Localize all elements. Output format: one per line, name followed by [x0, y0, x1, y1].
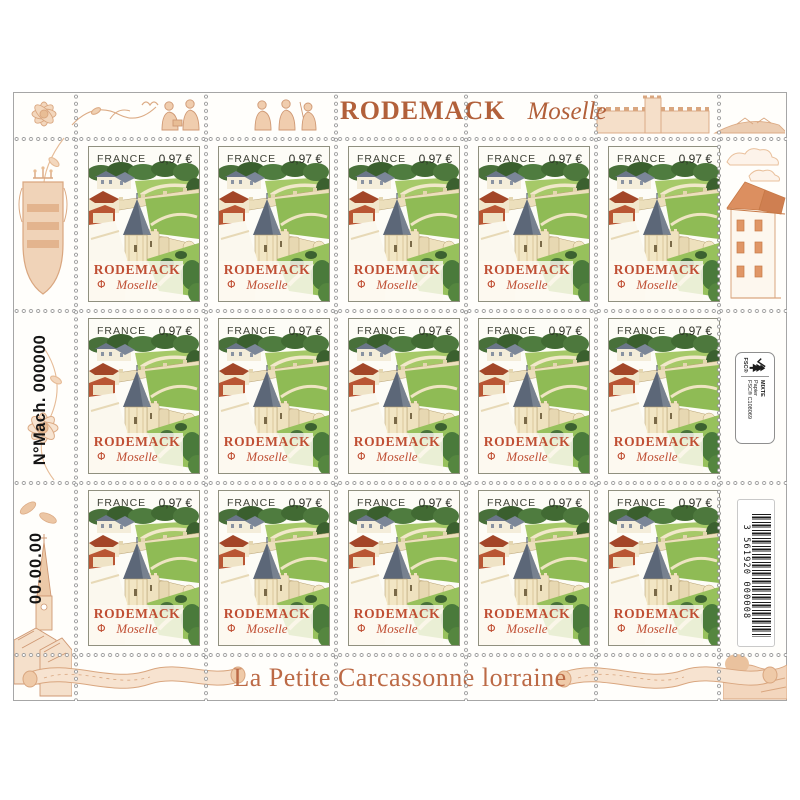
- fsc-line-mixte: MIXTE: [758, 380, 765, 419]
- stamp-name-label: RODEMACK: [349, 606, 445, 622]
- stamp-face-value: 0,97 €: [549, 152, 582, 166]
- stamp-name-label: RODEMACK: [89, 262, 185, 278]
- stamp: FRANCE 0,97 € RODEMACK Moselle Φ: [348, 318, 460, 474]
- stamp: FRANCE 0,97 € RODEMACK Moselle Φ: [88, 490, 200, 646]
- stamp-face-value: 0,97 €: [159, 152, 192, 166]
- stamp-name-label: RODEMACK: [609, 606, 705, 622]
- stamp-country-label: FRANCE: [617, 325, 666, 337]
- barcode-content: 3 561920 000008: [740, 502, 772, 642]
- stamp-face-value: 0,97 €: [289, 152, 322, 166]
- stamp-face-value: 0,97 €: [419, 496, 452, 510]
- fsc-label-content: FSC® MIXTE Papier FSC® C108069: [736, 354, 774, 442]
- stamp-printer-mark: Φ: [617, 450, 626, 463]
- stamp: FRANCE 0,97 € RODEMACK Moselle Φ: [608, 490, 720, 646]
- stamp-printer-mark: Φ: [227, 622, 236, 635]
- stamp-printer-mark: Φ: [487, 450, 496, 463]
- sheet-title-region: Moselle: [527, 98, 606, 126]
- stamp-name-label: RODEMACK: [479, 606, 575, 622]
- stamp-face-value: 0,97 €: [679, 324, 712, 338]
- stamp-face-value: 0,97 €: [419, 324, 452, 338]
- fsc-divider: [741, 376, 769, 377]
- barcode-number: 3 561920 000008: [741, 502, 751, 642]
- stamp-face-value: 0,97 €: [159, 324, 192, 338]
- stamp-name-label: RODEMACK: [89, 606, 185, 622]
- stamp-name-label: RODEMACK: [349, 262, 445, 278]
- sheet-title: RODEMACK Moselle: [340, 96, 607, 126]
- stamp-name-label: RODEMACK: [479, 434, 575, 450]
- stamp-printer-mark: Φ: [97, 450, 106, 463]
- stamp: FRANCE 0,97 € RODEMACK Moselle Φ: [348, 146, 460, 302]
- stamp-country-label: FRANCE: [617, 153, 666, 165]
- stamp-country-label: FRANCE: [487, 153, 536, 165]
- stamp-country-label: FRANCE: [357, 497, 406, 509]
- stamp: FRANCE 0,97 € RODEMACK Moselle Φ: [608, 146, 720, 302]
- stamp-name-label: RODEMACK: [349, 434, 445, 450]
- stamp-country-label: FRANCE: [357, 153, 406, 165]
- stamp-face-value: 0,97 €: [679, 152, 712, 166]
- stamp-printer-mark: Φ: [97, 278, 106, 291]
- machine-number-text: N°Mach. 000000: [30, 325, 50, 475]
- stamp-face-value: 0,97 €: [289, 496, 322, 510]
- stamp: FRANCE 0,97 € RODEMACK Moselle Φ: [348, 490, 460, 646]
- stamp-country-label: FRANCE: [97, 325, 146, 337]
- stamp-name-label: RODEMACK: [219, 434, 315, 450]
- stamp: FRANCE 0,97 € RODEMACK Moselle Φ: [88, 146, 200, 302]
- stamp: FRANCE 0,97 € RODEMACK Moselle Φ: [478, 146, 590, 302]
- stamp-face-value: 0,97 €: [159, 496, 192, 510]
- stamp-face-value: 0,97 €: [549, 496, 582, 510]
- stamp: FRANCE 0,97 € RODEMACK Moselle Φ: [608, 318, 720, 474]
- stamp-printer-mark: Φ: [617, 278, 626, 291]
- barcode-bars: [752, 514, 771, 637]
- stamp-country-label: FRANCE: [227, 497, 276, 509]
- stamp-name-label: RODEMACK: [609, 434, 705, 450]
- stamp-country-label: FRANCE: [357, 325, 406, 337]
- stamp-country-label: FRANCE: [487, 497, 536, 509]
- stamp-printer-mark: Φ: [357, 622, 366, 635]
- stamp-name-label: RODEMACK: [219, 606, 315, 622]
- fsc-line-code: FSC® C108069: [745, 380, 752, 419]
- stamp-printer-mark: Φ: [357, 450, 366, 463]
- stamp-country-label: FRANCE: [97, 153, 146, 165]
- fsc-text-lines: MIXTE Papier FSC® C108069: [745, 380, 765, 419]
- stamp-country-label: FRANCE: [227, 325, 276, 337]
- stamp-name-label: RODEMACK: [89, 434, 185, 450]
- stamp-printer-mark: Φ: [617, 622, 626, 635]
- sheet-caption: La Petite Carcassonne lorraine: [13, 663, 787, 693]
- stamp: FRANCE 0,97 € RODEMACK Moselle Φ: [218, 318, 330, 474]
- stamp-country-label: FRANCE: [227, 153, 276, 165]
- stamp-printer-mark: Φ: [357, 278, 366, 291]
- stamp: FRANCE 0,97 € RODEMACK Moselle Φ: [478, 318, 590, 474]
- stamp-sheet-page: RODEMACK Moselle La Petite Carcassonne l…: [0, 0, 800, 800]
- fsc-line-papier: Papier: [752, 380, 759, 419]
- stamp: FRANCE 0,97 € RODEMACK Moselle Φ: [218, 490, 330, 646]
- stamp-printer-mark: Φ: [487, 278, 496, 291]
- stamp-name-label: RODEMACK: [479, 262, 575, 278]
- stamp-country-label: FRANCE: [617, 497, 666, 509]
- print-date-text: 00.00.00: [26, 528, 46, 608]
- stamp-printer-mark: Φ: [227, 450, 236, 463]
- stamp: FRANCE 0,97 € RODEMACK Moselle Φ: [218, 146, 330, 302]
- sheet-title-name: RODEMACK: [340, 96, 505, 126]
- stamp: FRANCE 0,97 € RODEMACK Moselle Φ: [88, 318, 200, 474]
- fsc-tree-icon: FSC®: [742, 357, 768, 373]
- stamp-printer-mark: Φ: [227, 278, 236, 291]
- fsc-brand-text: FSC®: [742, 357, 748, 372]
- stamp-face-value: 0,97 €: [679, 496, 712, 510]
- stamp: FRANCE 0,97 € RODEMACK Moselle Φ: [478, 490, 590, 646]
- fsc-label: FSC® MIXTE Papier FSC® C108069: [735, 352, 775, 444]
- stamp-name-label: RODEMACK: [609, 262, 705, 278]
- stamp-country-label: FRANCE: [487, 325, 536, 337]
- stamp-printer-mark: Φ: [97, 622, 106, 635]
- stamp-face-value: 0,97 €: [419, 152, 452, 166]
- stamp-face-value: 0,97 €: [549, 324, 582, 338]
- stamp-name-label: RODEMACK: [219, 262, 315, 278]
- stamp-printer-mark: Φ: [487, 622, 496, 635]
- barcode: 3 561920 000008: [737, 499, 775, 647]
- stamp-face-value: 0,97 €: [289, 324, 322, 338]
- stamp-country-label: FRANCE: [97, 497, 146, 509]
